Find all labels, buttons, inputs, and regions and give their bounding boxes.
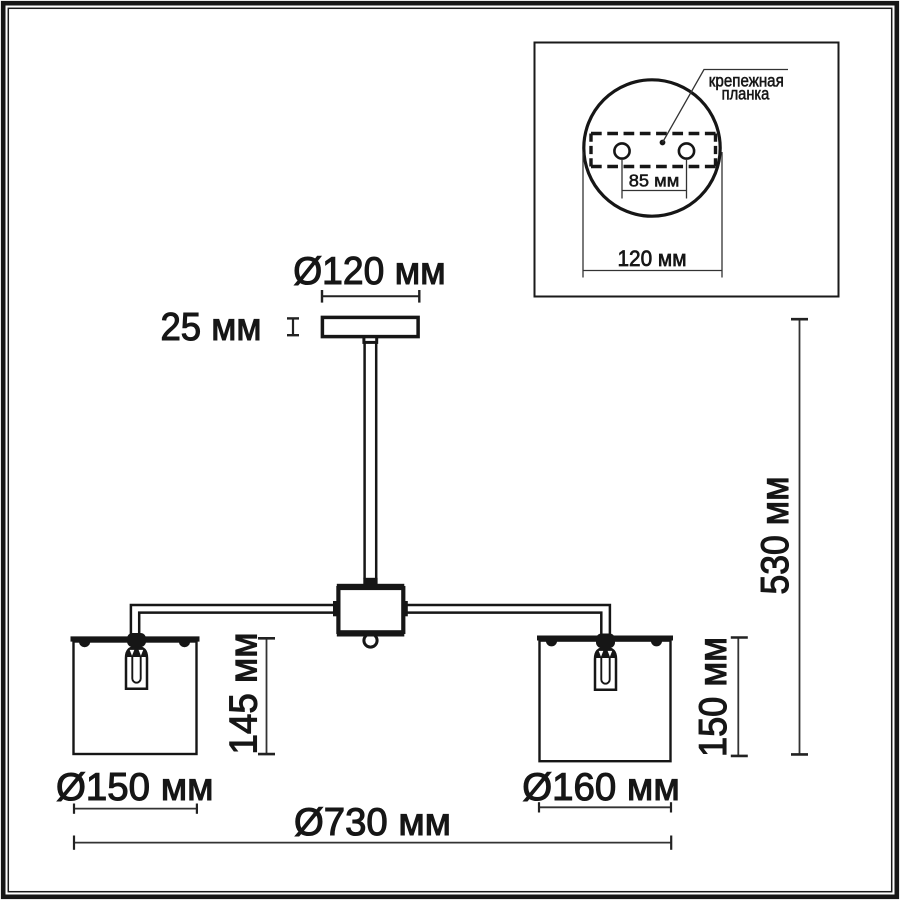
- svg-text:150 мм: 150 мм: [692, 637, 735, 757]
- svg-text:120 мм: 120 мм: [618, 246, 687, 271]
- svg-text:145 мм: 145 мм: [223, 633, 266, 755]
- svg-text:25 мм: 25 мм: [161, 306, 262, 349]
- svg-text:Ø160 мм: Ø160 мм: [522, 766, 680, 809]
- svg-text:Ø150 мм: Ø150 мм: [56, 766, 214, 809]
- svg-text:планка: планка: [722, 83, 770, 103]
- svg-text:85 мм: 85 мм: [629, 171, 680, 191]
- svg-text:530 мм: 530 мм: [754, 477, 797, 595]
- svg-text:Ø730 мм: Ø730 мм: [294, 801, 451, 844]
- svg-text:Ø120 мм: Ø120 мм: [293, 250, 446, 293]
